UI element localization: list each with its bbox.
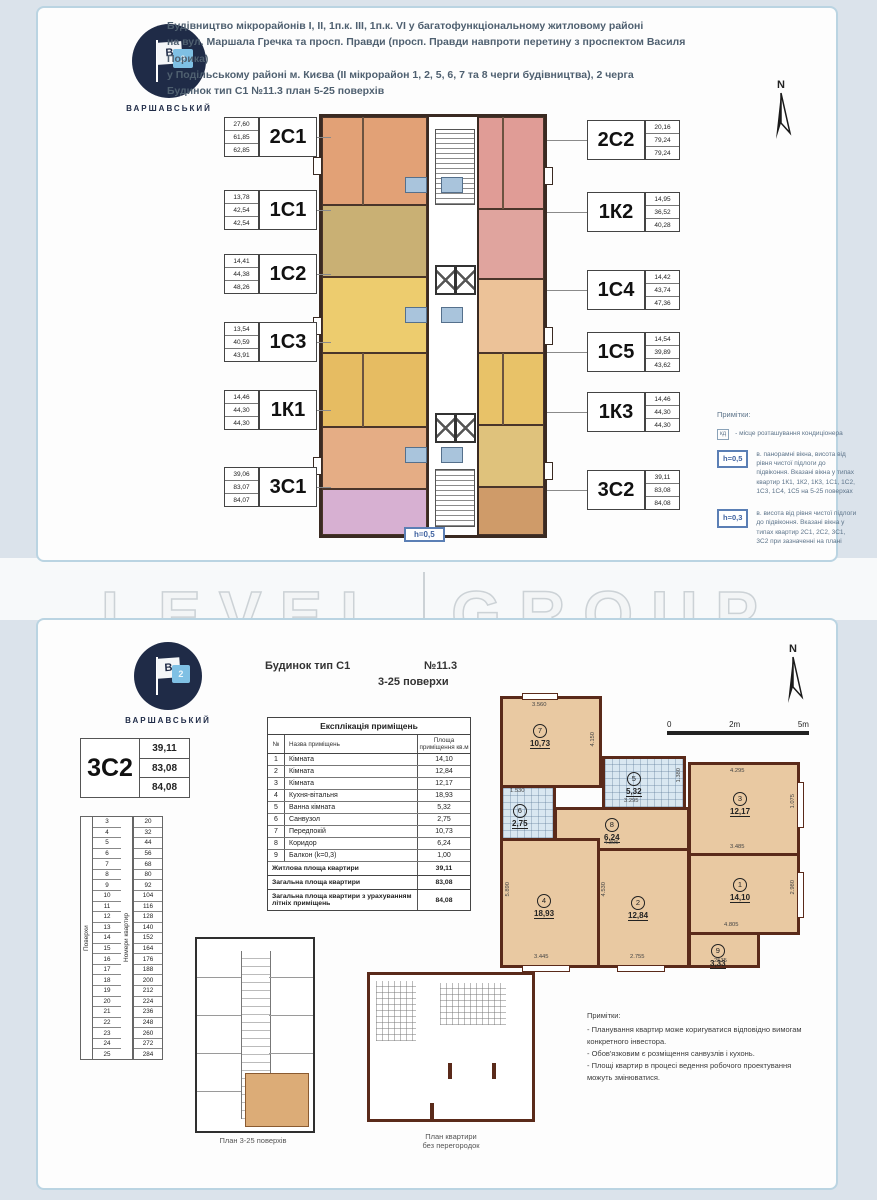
connector-line — [317, 342, 331, 343]
floor-cell: 4 — [93, 828, 121, 839]
unit-area-value: 44,38 — [225, 268, 258, 281]
room-label: 114,10 — [730, 874, 750, 903]
apartment-number-cell: 272 — [134, 1039, 162, 1050]
building-type: Будинок тип С1 — [265, 660, 350, 672]
connector-line — [317, 487, 331, 488]
notes-list: - Планування квартир може коригуватися в… — [587, 1024, 817, 1084]
apartment-number-cell: 188 — [134, 965, 162, 976]
room-number: 5 — [268, 802, 285, 813]
interior-wall — [362, 117, 364, 205]
floor-cell: 7 — [93, 859, 121, 870]
col-header-name: Назва приміщень — [285, 735, 418, 753]
unit-label-group: 39,06 83,07 84,07 3С1 — [224, 467, 317, 507]
watermark-band — [0, 558, 877, 620]
apartment-number-cell: 20 — [134, 817, 162, 828]
unit-area-value: 39,11 — [646, 471, 679, 484]
interior-wall — [362, 353, 364, 427]
room-bath — [602, 756, 686, 810]
apartment-zone-1c3 — [322, 353, 427, 427]
key-plan-line — [269, 1053, 313, 1054]
unit-area-value: 14,42 — [646, 271, 679, 284]
unit-areas: 39,11 83,08 84,08 — [139, 739, 189, 797]
explication-row: 8 Коридор 6,24 — [268, 838, 470, 850]
open-plan-hatch — [440, 983, 506, 1025]
apartment-number-cell: 32 — [134, 828, 162, 839]
ac-note: кд - місце розташування кондиціонера — [717, 429, 857, 440]
floor-cell: 23 — [93, 1028, 121, 1039]
unit-areas: 14,95 36,52 40,28 — [645, 192, 680, 232]
unit-label-group: 13,54 40,59 43,91 1С3 — [224, 322, 317, 362]
height-note-text: в. висота від рівня чистої підлоги до пі… — [756, 509, 857, 547]
top-document: В 2 ВАРШАВСЬКИЙ Будівництво мікрорайонів… — [36, 6, 838, 562]
room-area: 14,10 — [418, 754, 470, 765]
apartment-number-cell: 224 — [134, 997, 162, 1008]
explication-row: 7 Передпокій 10,73 — [268, 826, 470, 838]
dimension-label: 2.755 — [630, 954, 645, 960]
open-plan-caption-line: без перегородок — [367, 1141, 535, 1150]
room-area: 18,93 — [418, 790, 470, 801]
elevator-icon — [455, 413, 476, 443]
apartment-number-cell: 92 — [134, 880, 162, 891]
height-notes: h=0,5 в. панорамні вікна, висота від рів… — [717, 450, 857, 547]
floor-cell: 9 — [93, 880, 121, 891]
apartment-number-cell: 260 — [134, 1028, 162, 1039]
header-line: на вул. Маршала Гречка та просп. Правди … — [167, 34, 727, 67]
height-note: h=0,3 в. висота від рівня чистої підлоги… — [717, 509, 857, 547]
height-note: h=0,5 в. панорамні вікна, висота від рів… — [717, 450, 857, 497]
room-label: 710,73 — [530, 720, 550, 749]
dimension-label: 4.295 — [730, 768, 745, 774]
floor-cell: 19 — [93, 986, 121, 997]
unit-area-value: 43,62 — [646, 359, 679, 371]
floor-cell: 22 — [93, 1018, 121, 1029]
unit-code: 1С4 — [587, 270, 645, 310]
explication-header: № Назва приміщень Площа приміщення кв.м — [268, 735, 470, 754]
explication-row: 9 Балкон (k=0,3) 1,00 — [268, 850, 470, 862]
unit-summary: 3С2 39,11 83,08 84,08 — [80, 738, 190, 798]
unit-area-value: 43,91 — [225, 349, 258, 361]
wall-stub — [492, 1063, 496, 1079]
unit-area-value: 14,46 — [646, 393, 679, 406]
room-number: 3 — [268, 778, 285, 789]
unit-area-value: 13,78 — [225, 191, 258, 204]
floor-cell: 13 — [93, 923, 121, 934]
room-hall — [500, 696, 602, 788]
apartment-number-cell: 56 — [134, 849, 162, 860]
floors-range: 3-25 поверхи — [378, 676, 449, 688]
room-area: 12,84 — [418, 766, 470, 777]
unit-code: 3С1 — [259, 467, 317, 507]
room-name: Коридор — [285, 838, 418, 849]
scale-zero: 0 — [667, 720, 671, 729]
room-number: 2 — [268, 766, 285, 777]
balcony-bump — [313, 157, 322, 175]
ac-text: - місце розташування кондиціонера — [735, 429, 843, 438]
bathroom-block — [441, 447, 463, 463]
stairs-icon — [435, 129, 475, 205]
stairs-icon — [435, 469, 475, 527]
open-plan-caption-line: План квартири — [367, 1132, 535, 1141]
apartment-number-cell: 68 — [134, 859, 162, 870]
explication-row: 3 Кімната 12,17 — [268, 778, 470, 790]
north-label: N — [780, 644, 806, 655]
unit-area-value: 79,24 — [646, 147, 679, 159]
room-label: 312,17 — [730, 788, 750, 817]
connector-line — [317, 274, 331, 275]
unit-area-value: 39,89 — [646, 346, 679, 359]
unit-area-value: 40,59 — [225, 336, 258, 349]
unit-label-group: 14,42 43,74 47,36 1С4 — [587, 270, 680, 310]
page: В 2 ВАРШАВСЬКИЙ Будівництво мікрорайонів… — [0, 0, 877, 1200]
total-area-with-summer: 84,08 — [140, 778, 189, 797]
elevator-icon — [435, 413, 456, 443]
elevator-icon — [455, 265, 476, 295]
unit-code: 3С2 — [81, 739, 139, 797]
room-label: 86,24 — [604, 814, 620, 843]
unit-area-value: 84,08 — [646, 497, 679, 509]
total-label: Загальна площа квартири — [268, 876, 418, 889]
unit-area-value: 14,95 — [646, 193, 679, 206]
balcony-bump — [544, 327, 553, 345]
building-number: №11.3 — [424, 660, 457, 672]
unit-code: 2С1 — [259, 117, 317, 157]
note-line: - Площі квартир в процесі ведення робочо… — [587, 1060, 817, 1084]
total-value: 39,11 — [418, 862, 470, 875]
total-area: 83,08 — [140, 759, 189, 779]
notes-title: Примітки: — [717, 410, 857, 421]
floor-cell: 16 — [93, 954, 121, 965]
wall-stub — [448, 1063, 452, 1079]
apartment-number-cell: 44 — [134, 838, 162, 849]
unit-label-group: 27,60 61,85 62,85 2С1 — [224, 117, 317, 157]
header-line: у Подільському районі м. Києва (II мікро… — [167, 67, 727, 83]
explication-table: Експлікація приміщень № Назва приміщень … — [267, 717, 471, 911]
unit-label-group: 14,46 44,30 44,30 1К3 — [587, 392, 680, 432]
interior-wall — [502, 117, 504, 209]
elevator-icon — [435, 265, 456, 295]
unit-areas: 14,42 43,74 47,36 — [645, 270, 680, 310]
apartment-number-cell: 164 — [134, 944, 162, 955]
floor-cell: 20 — [93, 997, 121, 1008]
unit-areas: 39,11 83,08 84,08 — [645, 470, 680, 510]
dimension-label: 2535 — [714, 958, 727, 964]
north-indicator: N — [768, 80, 794, 148]
bathroom-block — [405, 177, 427, 193]
apartment-number-cell: 80 — [134, 870, 162, 881]
connector-line — [547, 490, 587, 491]
room-wc — [500, 785, 556, 841]
floor-plan — [319, 114, 547, 538]
unit-area-value: 14,54 — [646, 333, 679, 346]
unit-area-value: 44,30 — [646, 419, 679, 431]
unit-area-value: 44,30 — [225, 404, 258, 417]
floor-cell: 12 — [93, 912, 121, 923]
window — [522, 693, 558, 700]
unit-area-value: 14,41 — [225, 255, 258, 268]
total-value: 84,08 — [418, 890, 470, 910]
key-plan-line — [197, 1015, 241, 1016]
open-plan — [367, 972, 535, 1122]
brand-logo: В 2 ВАРШАВСЬКИЙ — [98, 642, 238, 710]
room-name: Кімната — [285, 766, 418, 777]
explication-row: 6 Санвузол 2,75 — [268, 814, 470, 826]
unit-code: 1С1 — [259, 190, 317, 230]
header-line: Будівництво мікрорайонів I, II, 1п.к. II… — [167, 18, 727, 34]
room-label: 62,75 — [512, 800, 528, 829]
bottom-document: В 2 ВАРШАВСЬКИЙ Будинок тип С1 №11.3 3-2… — [36, 618, 838, 1190]
unit-code: 1К3 — [587, 392, 645, 432]
floor-cell: 10 — [93, 891, 121, 902]
room-name: Ванна кімната — [285, 802, 418, 813]
explication-row: 5 Ванна кімната 5,32 — [268, 802, 470, 814]
apartment-number-cell: 200 — [134, 975, 162, 986]
unit-label-group: 13,78 42,54 42,54 1С1 — [224, 190, 317, 230]
room-area: 1,00 — [418, 850, 470, 861]
room-label: 418,93 — [534, 890, 554, 919]
col-header-area: Площа приміщення кв.м — [418, 735, 470, 753]
connector-line — [547, 290, 587, 291]
unit-code: 1К1 — [259, 390, 317, 430]
unit-area-value: 14,46 — [225, 391, 258, 404]
unit-area-value: 61,85 — [225, 131, 258, 144]
explication-rows: 1 Кімната 14,10 2 Кімната 12,84 3 Кімнат… — [268, 754, 470, 862]
room-name: Санвузол — [285, 814, 418, 825]
unit-label-group: 14,95 36,52 40,28 1К2 — [587, 192, 680, 232]
unit-label-group: 14,54 39,89 43,62 1С5 — [587, 332, 680, 372]
floors-apartments-table: Поверхи 34567891011121314151617181920212… — [80, 816, 163, 1060]
apartment-zone-1c1 — [322, 205, 427, 277]
unit-area-value: 40,28 — [646, 219, 679, 231]
dimension-label: 3.445 — [534, 954, 549, 960]
room-area: 12,17 — [418, 778, 470, 789]
unit-area-value: 44,30 — [225, 417, 258, 429]
floor-cell: 6 — [93, 849, 121, 860]
total-label: Житлова площа квартири — [268, 862, 418, 875]
room-label: 55,32 — [626, 768, 642, 797]
unit-area-value: 79,24 — [646, 134, 679, 147]
floor-cell: 11 — [93, 902, 121, 913]
floors-column: 345678910111213141516171819202122232425 — [92, 817, 121, 1059]
unit-area-value: 62,85 — [225, 144, 258, 156]
key-plan — [195, 937, 315, 1133]
key-plan-line — [197, 1091, 241, 1092]
scale-bar-line — [667, 731, 809, 735]
total-row: Житлова площа квартири 39,11 — [268, 862, 470, 876]
dimension-label: 4.150 — [590, 732, 596, 747]
interior-wall — [502, 353, 504, 425]
apartments-column: 2032445668809210411612814015216417618820… — [133, 817, 162, 1059]
unit-area-value: 48,26 — [225, 281, 258, 293]
bottom-notes: Примітки: - Планування квартир може кори… — [587, 1010, 817, 1084]
dimension-label: 3.560 — [532, 702, 547, 708]
room-number: 8 — [268, 838, 285, 849]
room-label: 212,84 — [628, 892, 648, 921]
apartment-number-cell: 140 — [134, 923, 162, 934]
room-number: 6 — [268, 814, 285, 825]
scale-bar: 0 2m 5m — [667, 720, 809, 735]
room-area: 5,32 — [418, 802, 470, 813]
unit-areas: 14,41 44,38 48,26 — [224, 254, 259, 294]
explication-row: 4 Кухня-вітальня 18,93 — [268, 790, 470, 802]
note-line: - Обов'язковим є розміщення санвузлів і … — [587, 1048, 817, 1060]
wall-stub — [430, 1103, 434, 1119]
explication-row: 1 Кімната 14,10 — [268, 754, 470, 766]
unit-area-value: 13,54 — [225, 323, 258, 336]
plan-height-tag: h=0,5 — [404, 527, 445, 542]
room-name: Балкон (k=0,3) — [285, 850, 418, 861]
room-number: 7 — [268, 826, 285, 837]
explication-title: Експлікація приміщень — [268, 718, 470, 735]
apartments-column-header: Номери квартир — [121, 817, 133, 1059]
bathroom-block — [405, 307, 427, 323]
floor-cell: 18 — [93, 975, 121, 986]
note-line: - Планування квартир може коригуватися в… — [587, 1024, 817, 1048]
balcony-bump — [544, 167, 553, 185]
unit-areas: 27,60 61,85 62,85 — [224, 117, 259, 157]
room-area: 10,73 — [418, 826, 470, 837]
header-line: Будинок тип С1 №11.3 план 5-25 поверхів — [167, 83, 727, 99]
unit-areas: 14,46 44,30 44,30 — [224, 390, 259, 430]
explication-totals: Житлова площа квартири 39,11 Загальна пл… — [268, 862, 470, 910]
unit-label-group: 39,11 83,08 84,08 3С2 — [587, 470, 680, 510]
floor-cell: 21 — [93, 1007, 121, 1018]
unit-area-value: 42,54 — [225, 204, 258, 217]
room-number: 4 — [268, 790, 285, 801]
connector-line — [317, 410, 331, 411]
north-label: N — [768, 80, 794, 91]
key-plan-caption: План 3-25 поверхів — [195, 1136, 311, 1145]
ac-symbol: кд — [717, 429, 729, 440]
floor-cell: 25 — [93, 1049, 121, 1059]
scale-end: 5m — [798, 720, 809, 729]
apartment-number-cell: 104 — [134, 891, 162, 902]
unit-code: 1С3 — [259, 322, 317, 362]
key-plan-line — [269, 977, 313, 978]
unit-area-value: 47,36 — [646, 297, 679, 309]
unit-label-group: 20,16 79,24 79,24 2С2 — [587, 120, 680, 160]
total-label: Загальна площа квартири з урахуванням лі… — [268, 890, 418, 910]
open-plan-hatch — [376, 981, 416, 1041]
floor-cell: 8 — [93, 870, 121, 881]
room-number: 9 — [268, 850, 285, 861]
bathroom-block — [441, 307, 463, 323]
apartment-number-cell: 152 — [134, 933, 162, 944]
logo-circle-icon: В 2 — [134, 642, 202, 710]
explication-row: 2 Кімната 12,84 — [268, 766, 470, 778]
unit-area-value: 20,16 — [646, 121, 679, 134]
unit-area-value: 44,30 — [646, 406, 679, 419]
connector-line — [547, 140, 587, 141]
unit-area-value: 36,52 — [646, 206, 679, 219]
connector-line — [317, 210, 331, 211]
height-note-text: в. панорамні вікна, висота від рівня чис… — [756, 450, 857, 497]
unit-areas: 39,06 83,07 84,07 — [224, 467, 259, 507]
north-arrow-icon — [768, 91, 794, 143]
unit-area-value: 83,07 — [225, 481, 258, 494]
unit-areas: 14,54 39,89 43,62 — [645, 332, 680, 372]
unit-area-value: 27,60 — [225, 118, 258, 131]
room-area: 6,24 — [418, 838, 470, 849]
dimension-label: 4.805 — [724, 922, 739, 928]
highlighted-apartment — [245, 1073, 309, 1127]
unit-area-value: 83,08 — [646, 484, 679, 497]
room-number: 1 — [268, 754, 285, 765]
apartment-number-cell: 212 — [134, 986, 162, 997]
window — [617, 965, 665, 972]
total-row: Загальна площа квартири 83,08 — [268, 876, 470, 890]
floor-cell: 3 — [93, 817, 121, 828]
height-tag: h=0,5 — [717, 450, 748, 469]
bathroom-block — [405, 447, 427, 463]
connector-line — [317, 137, 331, 138]
room-name: Передпокій — [285, 826, 418, 837]
total-row: Загальна площа квартири з урахуванням лі… — [268, 890, 470, 910]
floor-cell: 24 — [93, 1039, 121, 1050]
dimension-label: 1.075 — [790, 794, 796, 809]
flag-number-icon: 2 — [172, 665, 190, 683]
height-tag: h=0,3 — [717, 509, 748, 528]
key-plan-line — [197, 977, 241, 978]
dimension-label: 1.530 — [510, 788, 525, 794]
apartment-number-cell: 116 — [134, 902, 162, 913]
floor-cell: 15 — [93, 944, 121, 955]
unit-code: 1К2 — [587, 192, 645, 232]
dimension-label: 1.380 — [676, 768, 682, 783]
unit-code: 1С2 — [259, 254, 317, 294]
bathroom-block — [441, 177, 463, 193]
connector-line — [547, 412, 587, 413]
connector-line — [547, 352, 587, 353]
key-plan-line — [197, 1053, 241, 1054]
room-name: Кімната — [285, 754, 418, 765]
total-value: 83,08 — [418, 876, 470, 889]
room-name: Кімната — [285, 778, 418, 789]
unit-code: 3С2 — [587, 470, 645, 510]
unit-area-value: 42,54 — [225, 217, 258, 229]
balcony-bump — [544, 462, 553, 480]
unit-area-value: 84,07 — [225, 494, 258, 506]
dimension-label: 4.530 — [601, 882, 607, 897]
unit-areas: 13,78 42,54 42,54 — [224, 190, 259, 230]
dimension-label: 5.890 — [505, 882, 511, 897]
unit-label-group: 14,46 44,30 44,30 1К1 — [224, 390, 317, 430]
dimension-label: 3.295 — [624, 798, 639, 804]
dimension-label: 2.980 — [790, 880, 796, 895]
unit-areas: 13,54 40,59 43,91 — [224, 322, 259, 362]
apartment-number-cell: 248 — [134, 1018, 162, 1029]
col-header-num: № — [268, 735, 285, 753]
room-area: 2,75 — [418, 814, 470, 825]
window — [797, 782, 804, 828]
room-name: Кухня-вітальня — [285, 790, 418, 801]
floor-cell: 17 — [93, 965, 121, 976]
unit-areas: 20,16 79,24 79,24 — [645, 120, 680, 160]
project-description: Будівництво мікрорайонів I, II, 1п.к. II… — [167, 18, 727, 99]
key-plan-line — [269, 1015, 313, 1016]
window — [522, 965, 570, 972]
dimension-label: 4.305 — [604, 840, 619, 846]
dimension-label: 3.485 — [730, 844, 745, 850]
floors-column-header: Поверхи — [81, 817, 92, 1059]
scale-mid: 2m — [729, 720, 740, 729]
plan-notes: Примітки: кд - місце розташування кондиц… — [717, 410, 857, 558]
unit-area-value: 39,06 — [225, 468, 258, 481]
floor-cell: 5 — [93, 838, 121, 849]
window — [797, 872, 804, 918]
room-label: 93,33 — [710, 940, 726, 969]
connector-line — [547, 212, 587, 213]
brand-name: ВАРШАВСЬКИЙ — [98, 716, 238, 725]
